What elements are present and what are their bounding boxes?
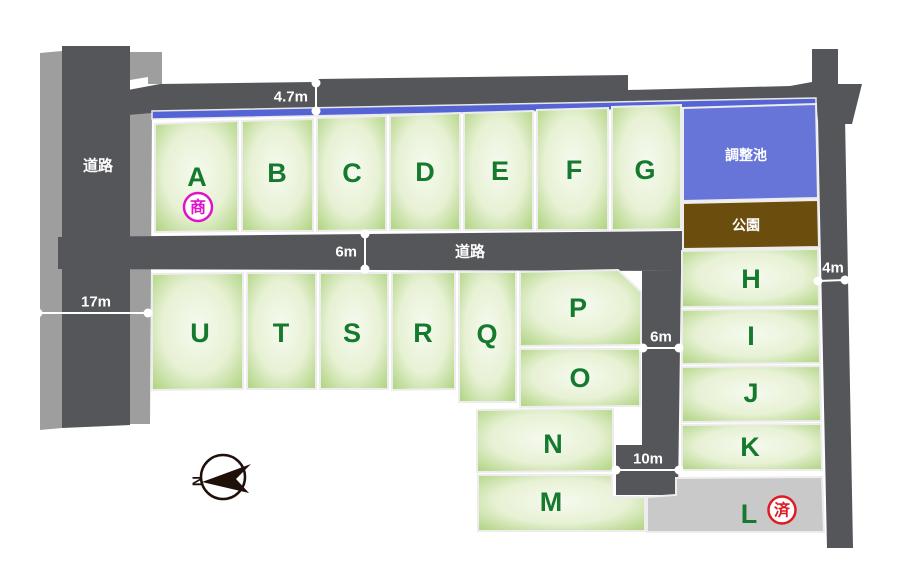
plot-m-label: M [540, 487, 563, 517]
dim-right-road-label: 4m [822, 260, 844, 277]
plot-d-label: D [415, 157, 435, 187]
plot-b-label: B [267, 158, 287, 188]
plot-a-status-label: 商 [190, 198, 206, 217]
plot-c-label: C [342, 158, 362, 188]
park-label: 公園 [732, 217, 760, 233]
plot-s-label: S [343, 318, 361, 348]
plot-q-label: Q [476, 319, 497, 349]
road-middle-label: 道路 [455, 243, 486, 261]
road-left-label: 道路 [83, 157, 114, 175]
road-right [818, 117, 853, 548]
dim-middle-road-label: 6m [335, 244, 357, 261]
plot-g-label: G [634, 155, 655, 185]
dim-top-road-label: 4.7m [274, 89, 308, 106]
dim-dot [34, 309, 43, 318]
dim-dot [312, 107, 321, 116]
sidewalk-step [130, 52, 162, 84]
plot-a-status-badge: 商 [184, 193, 212, 221]
plot-t-label: T [273, 318, 290, 348]
plot-f-label: F [566, 155, 583, 185]
plot-j-label: J [743, 378, 758, 408]
retention-pond-label: 調整池 [725, 147, 767, 163]
dim-dot [144, 309, 153, 318]
plot-k-label: K [740, 432, 760, 462]
plot-l-status-badge: 済 [769, 497, 796, 524]
plot-p-label: P [569, 293, 587, 323]
plot-o-label: O [569, 363, 590, 393]
dim-left-road-label: 17m [81, 294, 111, 311]
dim-dot [639, 344, 648, 353]
plot-l-status-label: 済 [774, 501, 791, 520]
dim-dot [675, 344, 684, 353]
dim-cul-de-sac-label: 10m [633, 451, 663, 468]
dim-dot [361, 265, 370, 274]
road-middle [58, 231, 682, 271]
site-plan-page: A B C D E F G U T S R Q P O N M H I J K … [0, 0, 905, 586]
compass: N [189, 455, 251, 499]
dim-dot [841, 276, 850, 285]
dim-dot [312, 79, 321, 88]
dim-dot [361, 230, 370, 239]
plot-e-label: E [491, 156, 509, 186]
plot-r-label: R [413, 318, 433, 348]
plot-u-label: U [190, 318, 210, 348]
compass-north-label: N [189, 476, 205, 486]
compass-needle-icon [202, 464, 251, 493]
site-plan-map: A B C D E F G U T S R Q P O N M H I J K … [0, 0, 905, 586]
plot-a-label: A [187, 162, 207, 192]
dim-dot [612, 466, 621, 475]
plot-l-label: L [741, 499, 758, 529]
plot-h-label: H [741, 264, 761, 294]
dim-dot [814, 277, 823, 286]
plot-i-label: I [747, 321, 755, 351]
dim-dot [675, 466, 684, 475]
dim-inner-road-label: 6m [650, 329, 672, 346]
plot-n-label: N [543, 429, 563, 459]
